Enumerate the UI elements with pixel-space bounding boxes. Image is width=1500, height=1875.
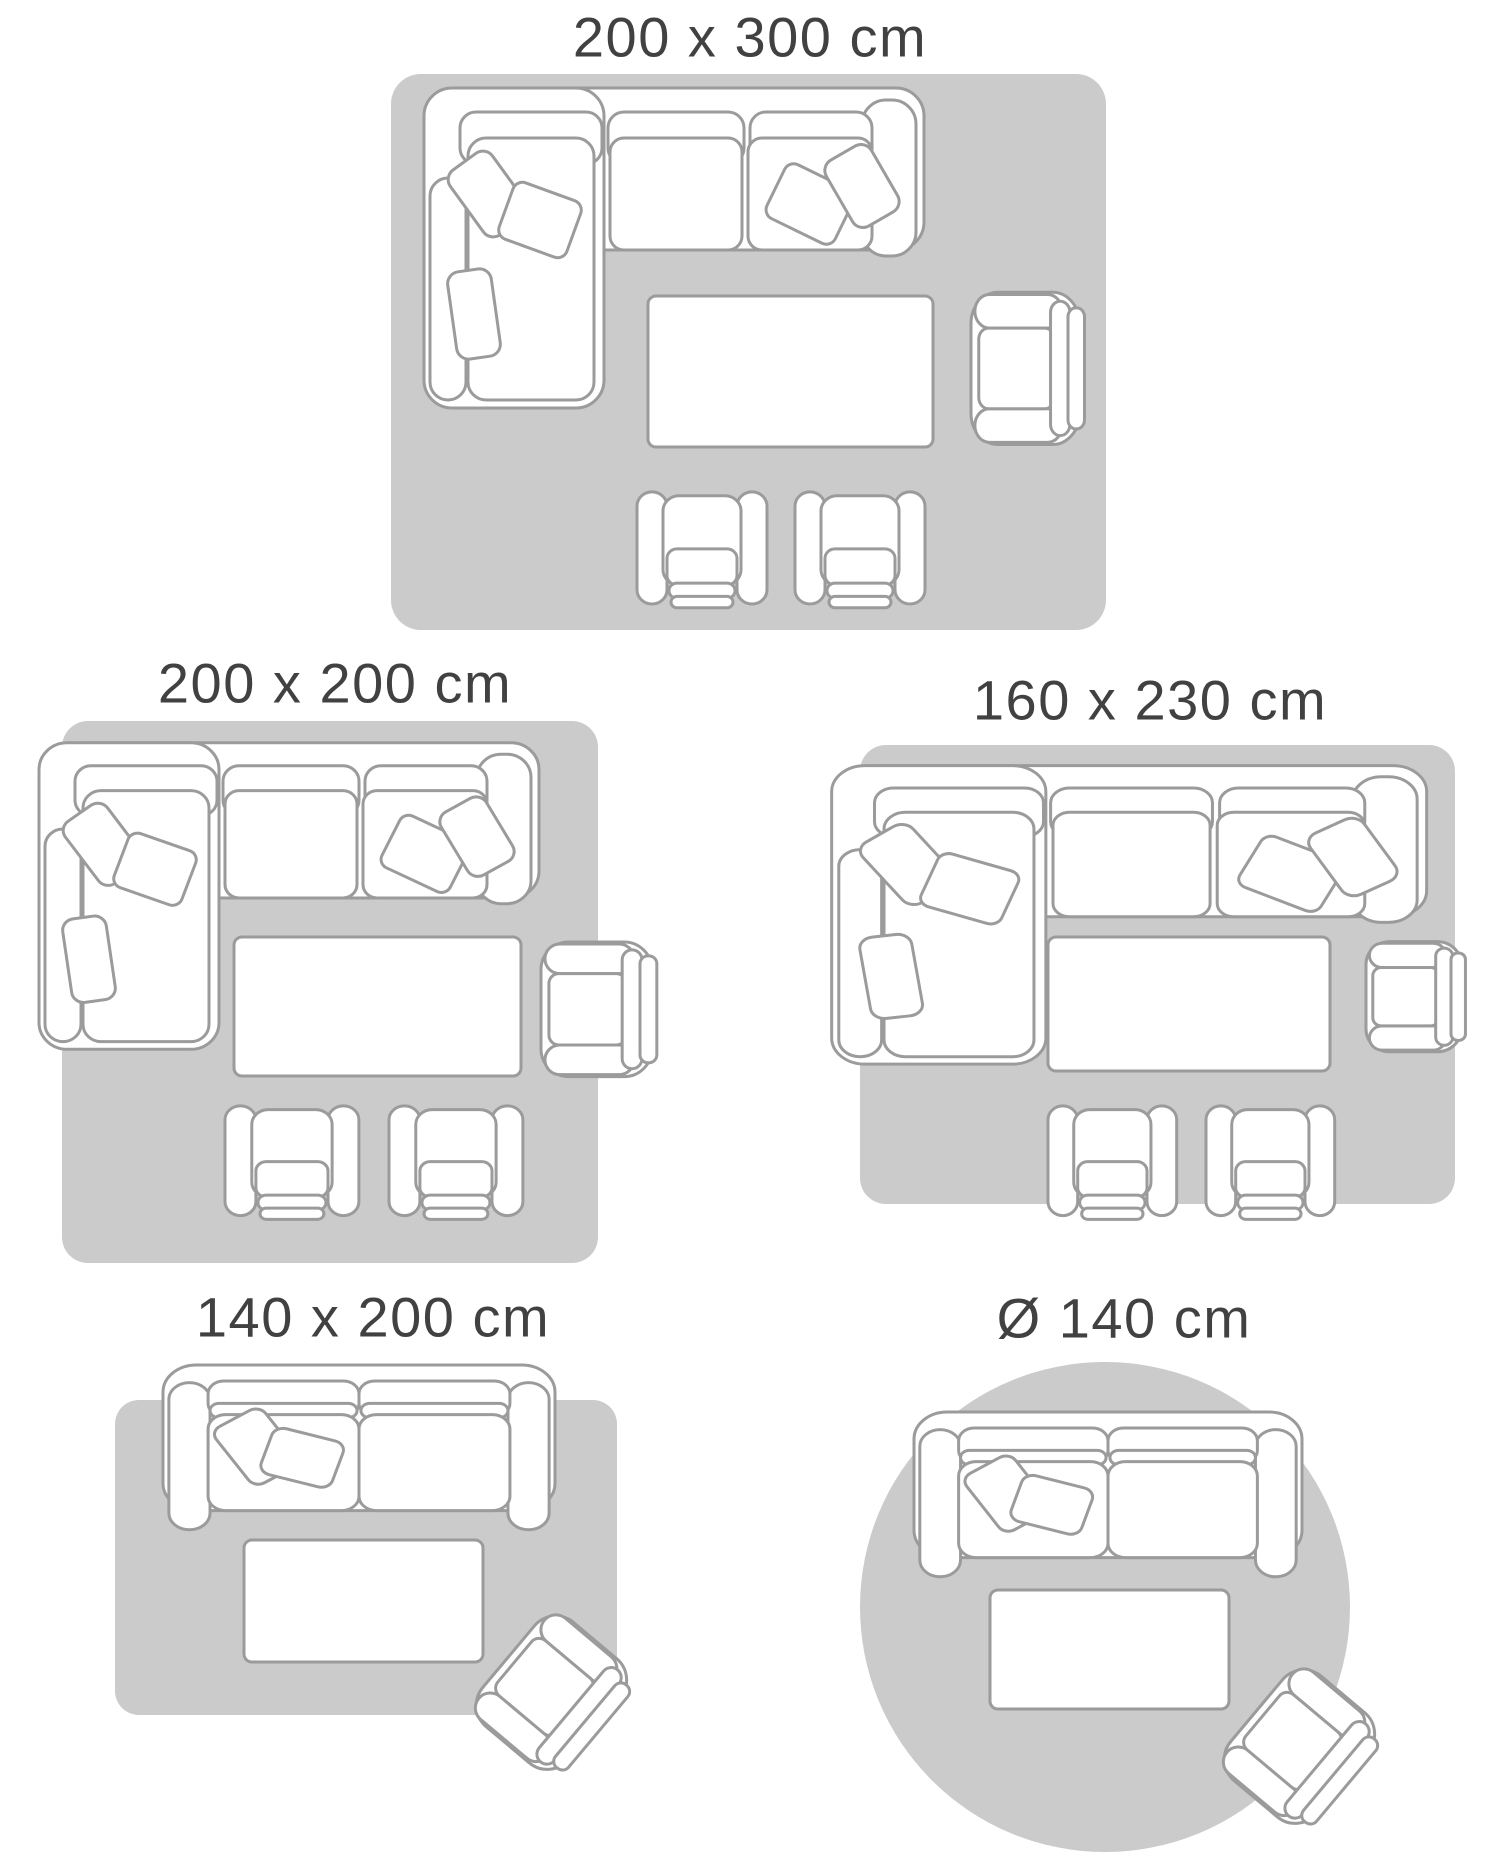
size-label-140x200: 140 x 200 cm	[196, 1285, 550, 1350]
coffee-table-icon	[1048, 937, 1330, 1071]
two-seat-sofa-icon	[914, 1412, 1302, 1577]
armchair-icon	[1048, 1106, 1177, 1219]
size-label-round-140: Ø 140 cm	[997, 1286, 1252, 1351]
diagram-round-140	[860, 1362, 1390, 1852]
armchair-icon	[1206, 1106, 1335, 1219]
size-label-200x200: 200 x 200 cm	[158, 651, 512, 716]
size-label-200x300: 200 x 300 cm	[573, 5, 927, 70]
size-label-160x230: 160 x 230 cm	[973, 668, 1327, 733]
armchair-icon	[1366, 942, 1465, 1052]
diagram-200x200	[39, 721, 657, 1263]
two-seat-sofa-icon	[163, 1365, 555, 1530]
armchair-icon	[795, 492, 925, 608]
coffee-table-icon	[648, 296, 933, 447]
rug-size-guide: 200 x 300 cm 200 x 200 cm 160 x 230 cm 1…	[0, 0, 1500, 1875]
diagram-140x200	[115, 1365, 642, 1784]
armchair-icon	[389, 1106, 523, 1219]
diagram-160x230	[832, 745, 1466, 1219]
armchair-icon	[971, 292, 1084, 444]
armchair-icon	[637, 492, 767, 608]
armchair-icon	[225, 1106, 359, 1219]
armchair-icon	[541, 942, 657, 1077]
coffee-table-icon	[244, 1540, 483, 1662]
diagram-200x300	[391, 74, 1106, 630]
size-guide-illustration	[0, 0, 1500, 1875]
coffee-table-icon	[234, 937, 521, 1076]
coffee-table-icon	[990, 1590, 1229, 1709]
